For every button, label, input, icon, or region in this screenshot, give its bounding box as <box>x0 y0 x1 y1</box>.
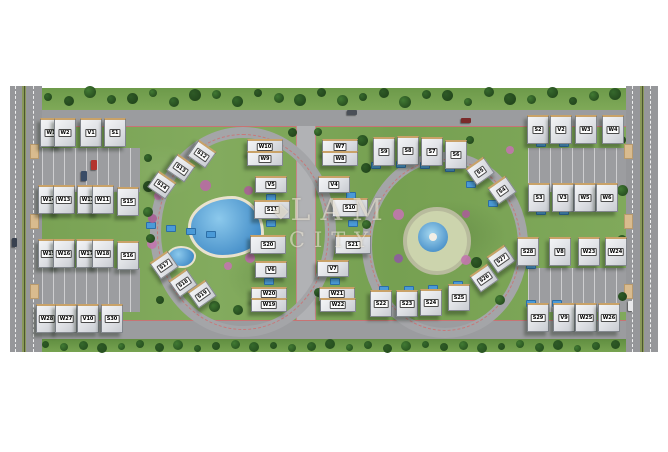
tree-icon <box>535 343 544 352</box>
unit-label: V7 <box>327 265 338 273</box>
tree-icon <box>495 295 505 305</box>
building-S1: S1 <box>104 118 126 147</box>
building-W27: W27 <box>55 304 77 333</box>
unit-label: V1 <box>85 129 96 137</box>
tree-icon <box>212 342 220 350</box>
tree-icon <box>459 341 468 350</box>
building-V10: V10 <box>77 304 99 333</box>
private-pool <box>266 220 276 227</box>
tree-icon <box>127 93 138 104</box>
tree-icon <box>79 341 88 350</box>
building-W13: W13 <box>53 185 75 214</box>
unit-label: S7 <box>426 148 437 156</box>
car-icon <box>628 301 633 311</box>
unit-label: S13 <box>172 160 189 175</box>
building-W11: W11 <box>92 185 114 214</box>
tree-icon <box>64 96 74 106</box>
unit-label: S23 <box>400 300 415 308</box>
flower-bed <box>506 146 514 154</box>
tree-icon <box>294 94 306 106</box>
flower-bed <box>245 253 255 263</box>
building-W3: W3 <box>575 115 597 144</box>
tree-icon <box>209 301 220 312</box>
unit-label: W13 <box>56 196 72 204</box>
tree-icon <box>107 95 116 104</box>
flower-bed <box>244 186 253 195</box>
unit-label: W7 <box>334 143 347 151</box>
building-S24: S24 <box>420 289 442 316</box>
tree-icon <box>361 163 371 173</box>
building-S9: S9 <box>373 137 395 166</box>
unit-label: S3 <box>533 194 544 202</box>
car-icon <box>12 238 17 247</box>
tree-icon <box>136 340 144 348</box>
unit-label: S14 <box>153 177 170 192</box>
unit-label: S17 <box>156 257 173 272</box>
plaza-fountain-center <box>429 233 437 241</box>
tree-icon <box>383 344 392 353</box>
building-W5: W5 <box>574 183 596 212</box>
tree-icon <box>498 343 505 350</box>
unit-label: S12 <box>193 146 210 161</box>
tree-icon <box>440 343 448 351</box>
building-V8: V8 <box>549 237 571 266</box>
tree-icon <box>516 340 524 348</box>
building-W4: W4 <box>602 115 624 144</box>
tree-icon <box>466 136 474 144</box>
tree-icon <box>464 98 472 106</box>
unit-label: W2 <box>59 129 72 137</box>
tree-icon <box>143 207 153 217</box>
tree-icon <box>527 95 536 104</box>
unit-label: S29 <box>531 314 546 322</box>
unit-label: S21 <box>346 241 361 249</box>
tree-icon <box>146 234 155 243</box>
building-W18: W18 <box>92 239 114 268</box>
building-V7: V7 <box>317 260 349 277</box>
tree-icon <box>60 343 68 351</box>
building-S10: S10 <box>332 198 368 217</box>
tree-icon <box>617 185 628 196</box>
unit-label: S9 <box>378 148 389 156</box>
tree-icon <box>592 342 600 350</box>
tree-icon <box>364 341 372 349</box>
tree-icon <box>189 89 201 101</box>
private-pool <box>186 228 196 235</box>
unit-label: V2 <box>555 126 566 134</box>
tree-icon <box>307 342 316 351</box>
unit-label: W19 <box>261 301 277 309</box>
flower-bed <box>224 262 232 270</box>
unit-label: V4 <box>328 181 339 189</box>
tree-icon <box>337 95 348 106</box>
building-W24: W24 <box>605 237 627 266</box>
tree-icon <box>346 344 353 351</box>
building-S8: S8 <box>397 136 419 165</box>
unit-label: W22 <box>330 301 346 309</box>
tree-icon <box>118 343 125 350</box>
unit-label: S27 <box>493 251 510 266</box>
flower-bed <box>200 180 211 191</box>
unit-label: S25 <box>452 294 467 302</box>
unit-label: W6 <box>601 194 614 202</box>
unit-label: W4 <box>607 126 620 134</box>
building-S30: S30 <box>101 304 123 333</box>
tree-icon <box>212 90 221 99</box>
tree-icon <box>399 96 411 108</box>
tree-icon <box>618 292 627 301</box>
tree-icon <box>553 340 563 350</box>
unit-label: W26 <box>601 314 617 322</box>
flower-bed <box>394 254 403 263</box>
bay <box>624 214 633 229</box>
tree-icon <box>288 128 297 137</box>
lane-marking <box>15 86 16 352</box>
bay <box>624 144 633 159</box>
unit-label: S1 <box>109 129 120 137</box>
tree-icon <box>314 128 322 136</box>
tree-icon <box>504 93 516 105</box>
tree-icon <box>231 340 240 349</box>
unit-label: S16 <box>121 252 136 260</box>
lane-marking <box>650 86 651 352</box>
tree-icon <box>317 88 326 97</box>
building-W8: W8 <box>322 151 358 166</box>
unit-label: V5 <box>265 181 276 189</box>
tree-icon <box>422 341 429 348</box>
bay <box>30 284 39 299</box>
unit-label: W27 <box>58 315 74 323</box>
building-S28: S28 <box>517 237 539 266</box>
building-W19: W19 <box>251 298 287 312</box>
tree-icon <box>249 342 259 352</box>
tree-icon <box>97 343 107 353</box>
flower-bed <box>462 210 470 218</box>
tree-icon <box>362 220 371 229</box>
unit-label: S5 <box>473 164 487 177</box>
building-V4: V4 <box>318 176 350 193</box>
unit-label: W11 <box>95 196 111 204</box>
building-S29: S29 <box>527 303 549 332</box>
tree-icon <box>270 342 277 349</box>
tree-icon <box>173 340 183 350</box>
unit-label: V8 <box>554 248 565 256</box>
private-pool <box>348 220 358 227</box>
tree-icon <box>401 341 411 351</box>
site-plan-image: W1W2V1S1W14W13W12W11S15W15W16W17W18S16W2… <box>0 0 668 452</box>
tree-icon <box>42 341 49 348</box>
unit-label: W28 <box>39 315 55 323</box>
unit-label: S22 <box>374 300 389 308</box>
tree-icon <box>144 154 152 162</box>
car-icon <box>347 110 357 115</box>
left-boulevard-median <box>22 86 26 352</box>
unit-label: W8 <box>334 155 347 163</box>
building-W2: W2 <box>54 118 76 147</box>
tree-icon <box>84 86 96 98</box>
tree-icon <box>357 135 368 146</box>
car-icon <box>81 171 87 181</box>
tree-icon <box>156 296 164 304</box>
building-W25: W25 <box>575 303 597 332</box>
building-W22: W22 <box>320 298 356 312</box>
building-S25: S25 <box>448 284 470 311</box>
private-pool <box>146 222 156 229</box>
bay <box>30 144 39 159</box>
tree-icon <box>611 340 620 349</box>
tree-icon <box>169 97 179 107</box>
unit-label: S11 <box>265 206 280 214</box>
tree-icon <box>442 90 453 101</box>
flower-bed <box>393 209 404 220</box>
private-pool <box>206 231 216 238</box>
unit-label: S2 <box>532 126 543 134</box>
building-V5: V5 <box>255 176 287 193</box>
tree-icon <box>422 90 431 99</box>
unit-label: S4 <box>495 183 509 196</box>
unit-label: W18 <box>95 250 111 258</box>
unit-label: W25 <box>578 314 594 322</box>
private-pool <box>330 278 340 285</box>
building-S16: S16 <box>117 241 139 270</box>
unit-label: S30 <box>105 315 120 323</box>
building-W16: W16 <box>53 239 75 268</box>
building-S21: S21 <box>335 235 371 254</box>
unit-label: W9 <box>259 155 272 163</box>
unit-label: S28 <box>521 248 536 256</box>
building-V3: V3 <box>552 183 574 212</box>
unit-label: S26 <box>476 270 493 285</box>
tree-icon <box>477 343 487 353</box>
tree-icon <box>274 93 284 103</box>
building-S11: S11 <box>254 200 290 219</box>
car-icon <box>461 118 471 123</box>
building-S22: S22 <box>370 290 392 317</box>
tree-icon <box>44 93 52 101</box>
car-icon <box>91 160 97 170</box>
tree-icon <box>149 89 157 97</box>
building-S7: S7 <box>421 137 443 166</box>
unit-label: S8 <box>402 147 413 155</box>
building-V6: V6 <box>255 261 287 278</box>
building-V9: V9 <box>553 303 575 332</box>
tree-icon <box>155 343 164 352</box>
unit-label: S15 <box>121 198 136 206</box>
building-W23: W23 <box>578 237 600 266</box>
building-V2: V2 <box>550 115 572 144</box>
private-pool <box>166 225 176 232</box>
unit-label: V3 <box>557 194 568 202</box>
building-S15: S15 <box>117 187 139 216</box>
unit-label: S20 <box>261 241 276 249</box>
tree-icon <box>194 345 201 352</box>
building-W9: W9 <box>247 151 283 166</box>
unit-label: S18 <box>175 275 192 290</box>
tree-icon <box>569 97 577 105</box>
unit-label: W5 <box>579 194 592 202</box>
building-V1: V1 <box>80 118 102 147</box>
building-S23: S23 <box>396 290 418 317</box>
building-S6: S6 <box>445 140 467 169</box>
unit-label: V6 <box>265 266 276 274</box>
building-W26: W26 <box>598 303 620 332</box>
flower-bed <box>461 255 471 265</box>
tree-icon <box>233 305 243 315</box>
unit-label: S24 <box>424 299 439 307</box>
right-boulevard-median <box>640 86 644 352</box>
private-pool <box>264 278 274 285</box>
tree-icon <box>254 89 262 97</box>
unit-label: W24 <box>608 248 624 256</box>
unit-label: S6 <box>450 151 461 159</box>
unit-label: S10 <box>343 204 358 212</box>
tree-icon <box>232 96 243 107</box>
tree-icon <box>325 339 335 349</box>
tree-icon <box>547 87 558 98</box>
building-S2: S2 <box>527 115 549 144</box>
tree-icon <box>574 345 581 352</box>
bay <box>30 214 39 229</box>
building-S3: S3 <box>528 183 550 212</box>
building-W6: W6 <box>596 183 618 212</box>
unit-label: W10 <box>257 143 273 151</box>
unit-label: V9 <box>558 314 569 322</box>
unit-label: S19 <box>194 286 211 301</box>
unit-label: W16 <box>56 250 72 258</box>
tree-icon <box>288 344 296 352</box>
unit-label: W23 <box>581 248 597 256</box>
unit-label: W3 <box>580 126 593 134</box>
tree-icon <box>609 88 621 100</box>
building-S20: S20 <box>250 235 286 254</box>
unit-label: V10 <box>81 315 96 323</box>
tree-icon <box>471 257 482 268</box>
